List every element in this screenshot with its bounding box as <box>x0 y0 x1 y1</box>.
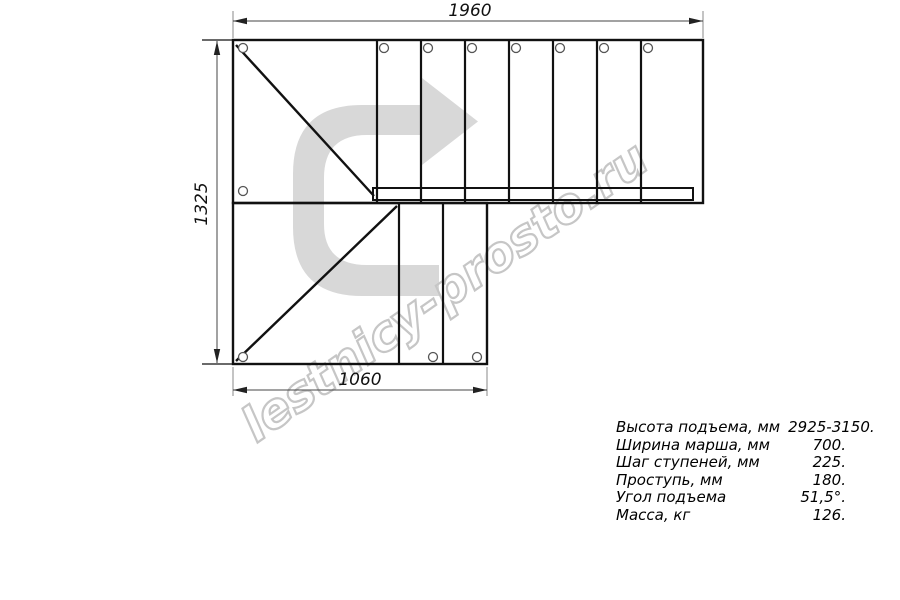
dimension-top: 1960 <box>233 1 703 38</box>
dim-arrow-right <box>689 18 703 24</box>
dim-left-label: 1325 <box>192 182 212 225</box>
dim-arrow-left <box>233 387 247 393</box>
dim-bottom-label: 1060 <box>338 370 381 390</box>
spec-value: 180. <box>813 472 846 490</box>
spec-value: 126. <box>813 507 846 525</box>
spec-row-height: Высота подъема, мм 2925-3150. <box>616 419 846 437</box>
spec-label: Масса, кг <box>616 507 690 525</box>
dim-top-label: 1960 <box>448 1 491 21</box>
spec-value: 51,5°. <box>800 489 846 507</box>
spec-row-angle: Угол подъема 51,5°. <box>616 489 846 507</box>
stair-drawing-canvas: lestnicy-prosto.ru <box>0 0 900 600</box>
spec-label: Шаг ступеней, мм <box>616 454 760 472</box>
spec-label: Ширина марша, мм <box>616 437 770 455</box>
spec-row-mass: Масса, кг 126. <box>616 507 846 525</box>
dim-arrow-up <box>214 41 220 55</box>
spec-row-step-pitch: Шаг ступеней, мм 225. <box>616 454 846 472</box>
spec-label: Угол подъема <box>616 489 726 507</box>
spec-row-tread: Проступь, мм 180. <box>616 472 846 490</box>
spec-value: 225. <box>813 454 846 472</box>
dim-arrow-down <box>214 349 220 363</box>
spec-label: Проступь, мм <box>616 472 723 490</box>
dimension-left: 1325 <box>192 41 220 363</box>
spec-row-flight-width: Ширина марша, мм 700. <box>616 437 846 455</box>
spec-value: 700. <box>813 437 846 455</box>
spec-label: Высота подъема, мм <box>616 419 780 437</box>
dim-arrow-right <box>473 387 487 393</box>
spec-value: 2925-3150. <box>788 419 875 437</box>
spec-table: Высота подъема, мм 2925-3150. Ширина мар… <box>616 419 846 525</box>
dim-arrow-left <box>233 18 247 24</box>
